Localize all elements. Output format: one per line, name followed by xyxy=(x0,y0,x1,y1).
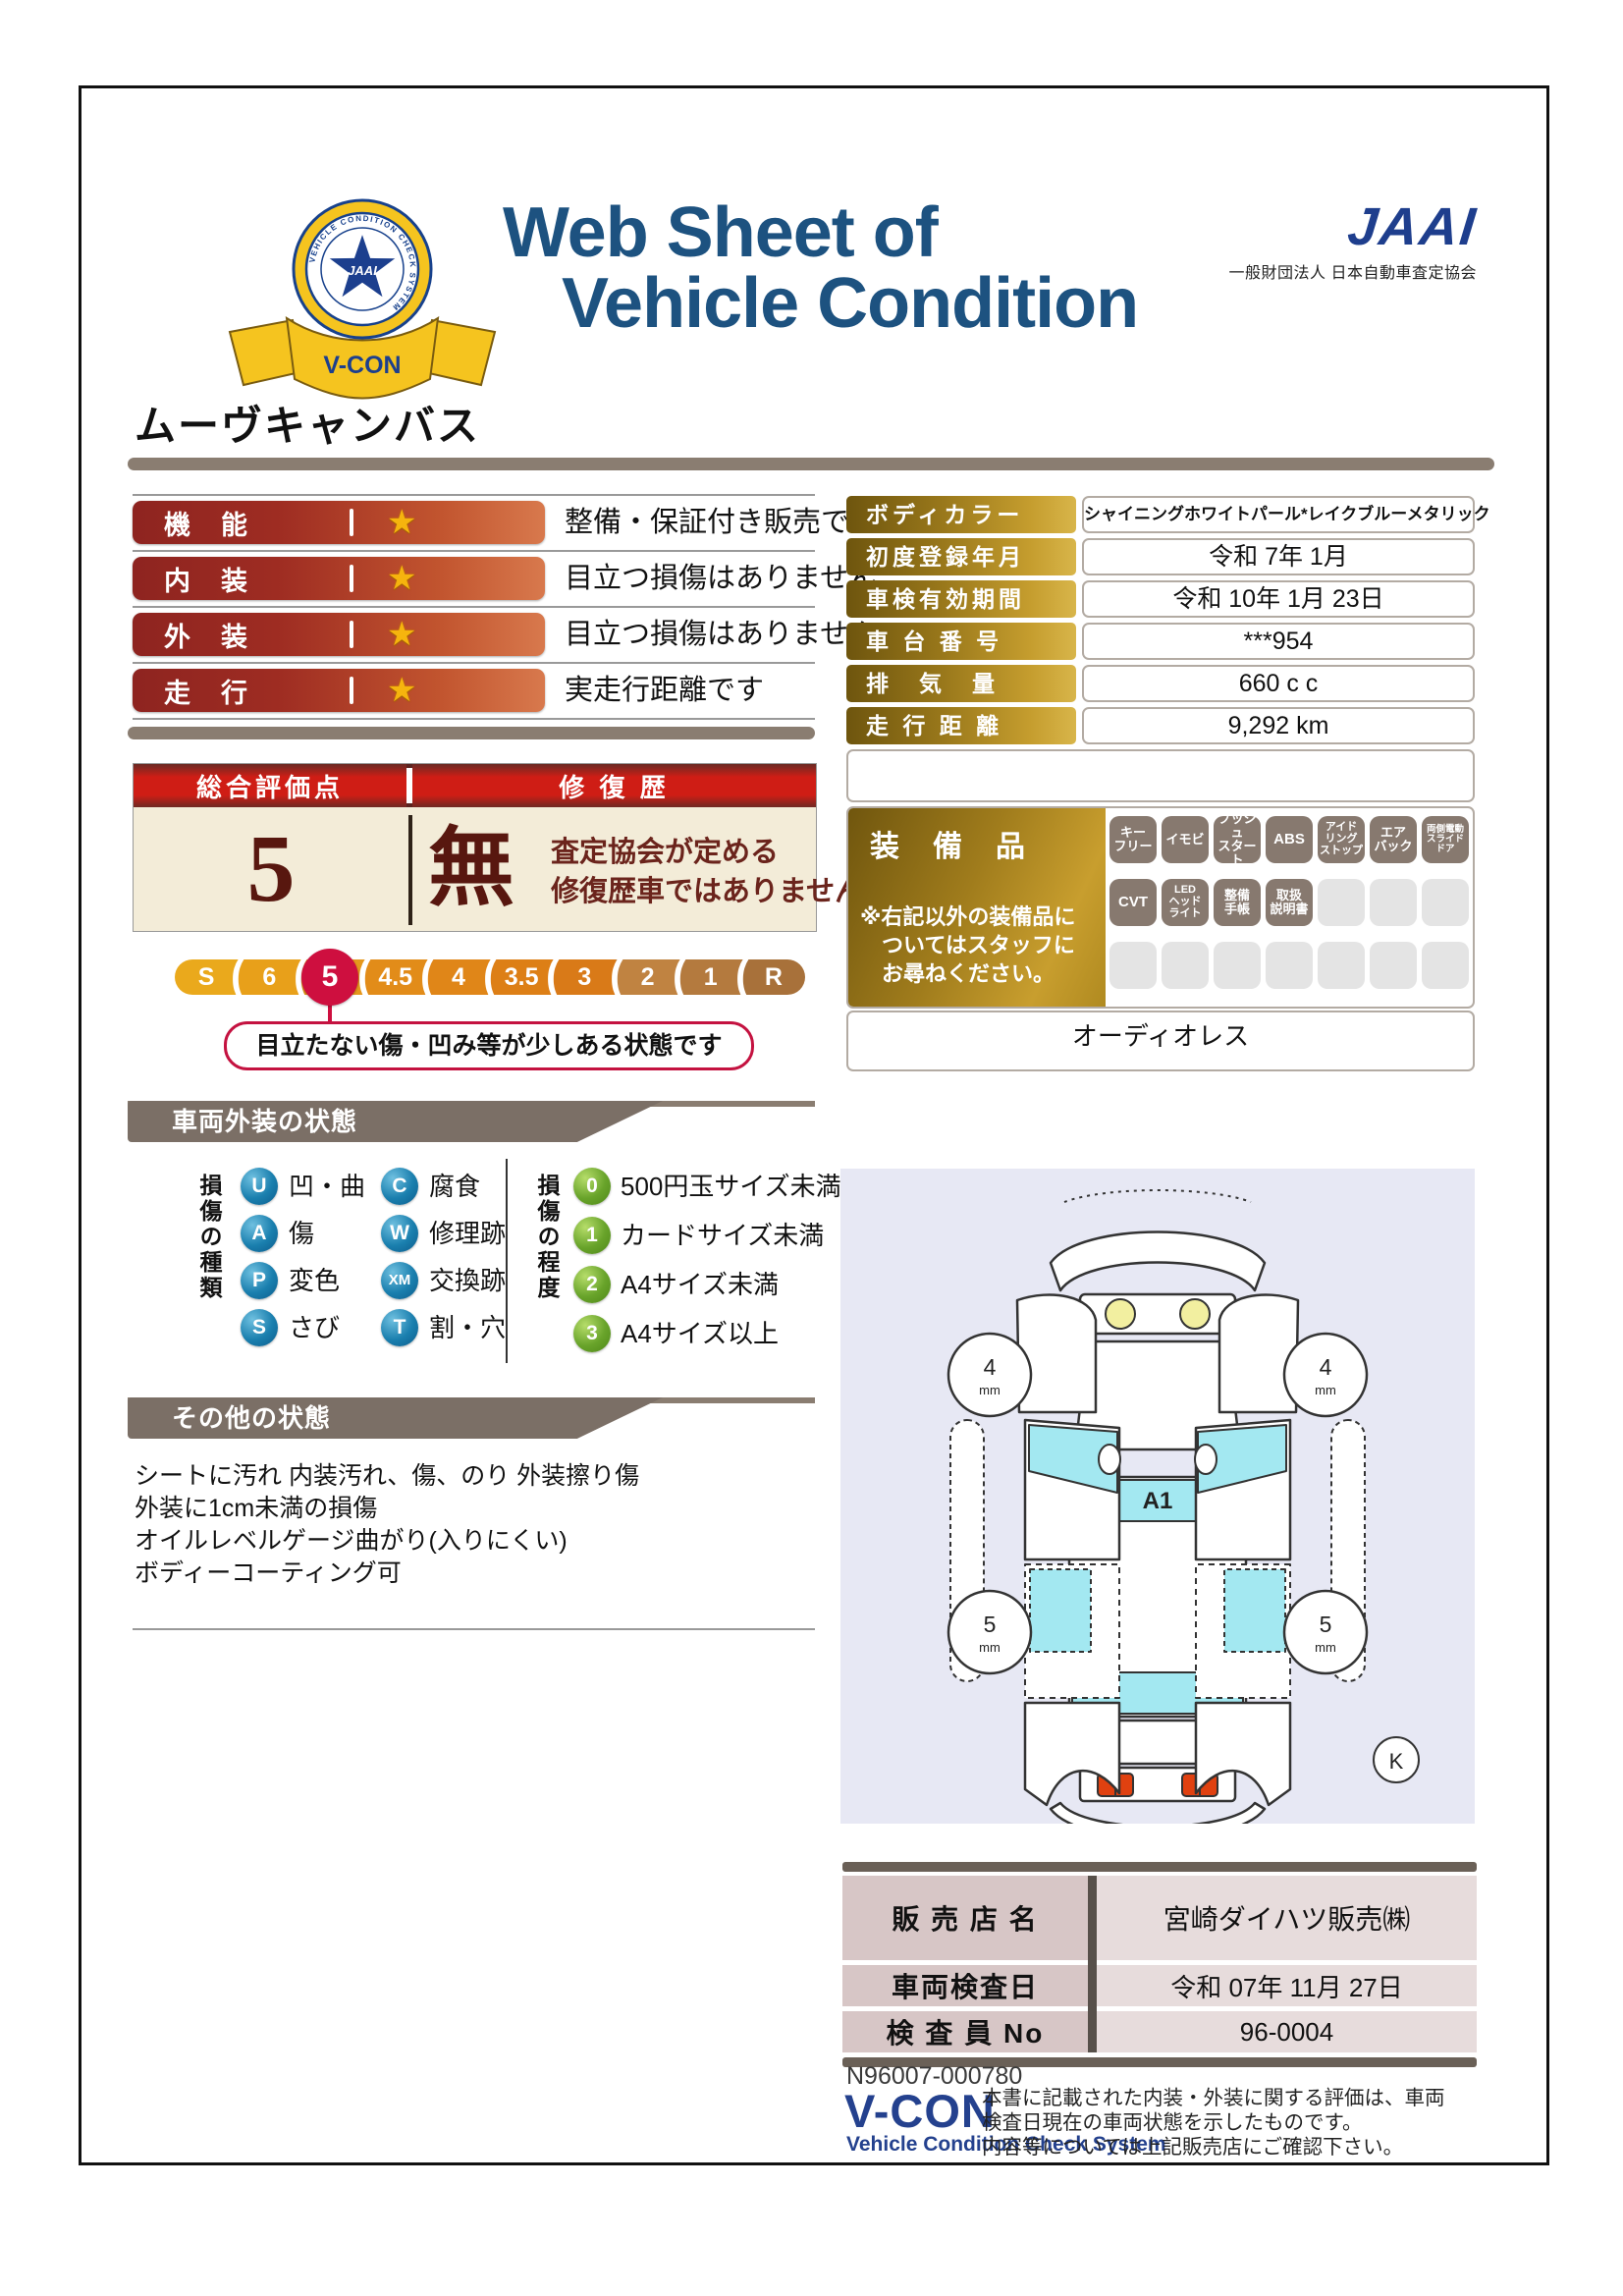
damage-type-text: 凹・曲 xyxy=(289,1168,365,1205)
damage-degree-icon-0: 0 xyxy=(573,1168,611,1205)
equipment-badge-manual: 取扱 説明書 xyxy=(1266,879,1313,926)
front-tread-left: 4 xyxy=(984,1354,997,1380)
star-icon: ★ xyxy=(387,615,416,654)
damage-type-icon-W: W xyxy=(381,1215,418,1252)
rating-label: 内 装 xyxy=(133,560,336,598)
rating-description: 目立つ損傷はありません xyxy=(565,557,877,600)
equipment-badge-ledheadlight: LED ヘッド ライト xyxy=(1162,879,1209,926)
damage-degree-icon-3: 3 xyxy=(573,1315,611,1352)
pill-divider xyxy=(350,677,353,704)
rating-label: 機 能 xyxy=(133,504,336,542)
equipment-badge-cvt: CVT xyxy=(1109,879,1157,926)
dealer-table-top-bar xyxy=(842,1862,1477,1872)
equipment-title: 装 備 品 xyxy=(870,822,1027,865)
jaai-logo: JAAI xyxy=(1195,196,1481,257)
equipment-badge-servicebook: 整備 手帳 xyxy=(1214,879,1261,926)
page-title-line2: Vehicle Condition xyxy=(562,263,1138,344)
jaai-logo-block: JAAI 一般財団法人 日本自動車査定協会 xyxy=(1198,196,1477,283)
unit-label: mm xyxy=(1315,1640,1336,1655)
detail-label: 走 行 距 離 xyxy=(846,707,1076,744)
overall-header-right: 修 復 歴 xyxy=(412,764,816,807)
damage-type-text: 変色 xyxy=(289,1262,340,1299)
other-section-underline xyxy=(133,1628,815,1630)
pill-divider xyxy=(350,509,353,536)
disclaimer-line: 内容等については上記販売店にご確認下さい。 xyxy=(982,2135,1403,2159)
damage-type-text: 交換跡 xyxy=(429,1262,506,1299)
overall-score-panel: 総合評価点 修 復 歴 5 無 査定協会が定める 修復歴車ではありません xyxy=(133,763,817,932)
scale-separator: ( xyxy=(543,952,563,1001)
star-icon: ★ xyxy=(387,559,416,598)
roof-section-label: A1 xyxy=(1143,1488,1173,1514)
equipment-badge-empty xyxy=(1318,879,1365,926)
inspector-no-label: 検 査 員 No xyxy=(842,2011,1088,2052)
repair-note-line2: 修復歴車ではありません xyxy=(551,868,863,909)
rating-separator xyxy=(133,718,815,720)
marker-letter: K xyxy=(1389,1749,1404,1774)
damage-degree-text: カードサイズ未満 xyxy=(621,1217,824,1254)
vcon-wordmark: V-CON xyxy=(844,2084,996,2138)
badge-ribbon-text: V-CON xyxy=(323,352,401,379)
equipment-badge-abs: ABS xyxy=(1266,816,1313,863)
headlight-left xyxy=(1106,1299,1135,1329)
headlight-right xyxy=(1180,1299,1210,1329)
repair-history-status: 無 xyxy=(428,819,514,921)
sheet-canvas: VEHICLE CONDITION CHECK SYSTEM JAAI V-CO… xyxy=(0,0,1623,2296)
dealer-name-label: 販 売 店 名 xyxy=(842,1876,1088,1960)
scale-separator: ( xyxy=(732,952,752,1001)
score-callout: 目立たない傷・凹み等が少しある状態です xyxy=(224,1021,754,1070)
damage-type-icon-P: P xyxy=(241,1262,278,1299)
equipment-badge-airbag: エア バック xyxy=(1370,816,1417,863)
rating-label: 外 装 xyxy=(133,616,336,654)
equipment-note-line: ついてはスタッフに xyxy=(860,931,1075,959)
overall-header: 総合評価点 修 復 歴 xyxy=(134,764,816,807)
damage-type-text: 傷 xyxy=(289,1215,314,1252)
damage-type-icon-A: A xyxy=(241,1215,278,1252)
rear-tread-left: 5 xyxy=(984,1612,997,1637)
rating-separator xyxy=(133,550,815,552)
section-title-exterior: 車両外装の状態 xyxy=(128,1101,663,1142)
detail-value-mileage: 9,292 km xyxy=(1082,707,1475,744)
jaai-subtitle: 一般財団法人 日本自動車査定協会 xyxy=(1198,259,1477,283)
equipment-badge-empty xyxy=(1266,942,1313,989)
damage-type-icon-S: S xyxy=(241,1309,278,1346)
star-icon: ★ xyxy=(387,503,416,542)
damage-type-text: 割・穴 xyxy=(429,1309,506,1346)
rear-tread-right: 5 xyxy=(1320,1612,1332,1637)
rating-row-soukou: 走 行 ★ xyxy=(133,669,545,712)
rating-description: 整備・保証付き販売です xyxy=(565,501,878,544)
damage-type-icon-T: T xyxy=(381,1309,418,1346)
rating-description: 目立つ損傷はありません xyxy=(565,613,877,656)
page-title-line1: Web Sheet of xyxy=(503,192,938,273)
front-panel xyxy=(1080,1294,1235,1334)
overall-header-left: 総合評価点 xyxy=(134,764,406,807)
rating-separator xyxy=(133,494,815,496)
equipment-badge-empty xyxy=(1422,879,1469,926)
equipment-badge-empty xyxy=(1422,942,1469,989)
scale-separator: ( xyxy=(670,952,689,1001)
disclaimer-line: 本書に記載された内装・外装に関する評価は、車両 xyxy=(982,2086,1445,2110)
badge-star-text: JAAI xyxy=(348,263,377,278)
damage-type-text: 修理跡 xyxy=(429,1215,506,1252)
damage-type-text: さび xyxy=(289,1309,340,1346)
rating-description: 実走行距離です xyxy=(565,669,764,712)
scale-separator: ( xyxy=(228,952,247,1001)
unit-label: mm xyxy=(979,1383,1001,1397)
damage-degree-text: A4サイズ未満 xyxy=(621,1266,779,1303)
other-condition-line: オイルレベルゲージ曲がり(入りにくい) xyxy=(135,1525,568,1558)
unit-label: mm xyxy=(1315,1383,1336,1397)
disclaimer-line: 検査日現在の車両状態を示したものです。 xyxy=(982,2110,1362,2135)
detail-label: 車検有効期間 xyxy=(846,580,1076,618)
body-divider xyxy=(408,815,412,925)
equipment-note-line: ※右記以外の装備品に xyxy=(860,902,1075,931)
damage-degree-text: 500円玉サイズ未満 xyxy=(621,1168,841,1205)
rating-separator xyxy=(133,606,815,608)
damage-type-icon-C: C xyxy=(381,1168,418,1205)
detail-value-displacement: 660 c c xyxy=(1082,665,1475,702)
damage-type-label: 損傷の種類 xyxy=(192,1174,226,1340)
equipment-badge-powerslidedoor: 両側電動 スライド ドア xyxy=(1422,816,1469,863)
detail-value-chassis-number: ***954 xyxy=(1082,623,1475,660)
scale-separator: ( xyxy=(607,952,626,1001)
equipment-badge-empty xyxy=(1318,942,1365,989)
details-empty-box xyxy=(846,749,1475,802)
equipment-badge-empty xyxy=(1214,942,1261,989)
other-condition-line: ボディーコーティング可 xyxy=(135,1558,402,1590)
equipment-badge-keyfree: キー フリー xyxy=(1109,816,1157,863)
detail-label: 初度登録年月 xyxy=(846,538,1076,575)
detail-value-body-color: シャイニングホワイトパール*レイクブルーメタリック xyxy=(1082,496,1475,533)
damage-degree-text: A4サイズ以上 xyxy=(621,1315,779,1352)
rating-row-gaisou: 外 装 ★ xyxy=(133,613,545,656)
detail-label: ボディカラー xyxy=(846,496,1076,533)
pill-divider xyxy=(350,621,353,648)
damage-degree-icon-1: 1 xyxy=(573,1217,611,1254)
active-score-marker: 5 xyxy=(301,949,358,1006)
equipment-badge-empty xyxy=(1109,942,1157,989)
door-mirror xyxy=(1099,1445,1120,1474)
other-condition-line: 外装に1cm未満の損傷 xyxy=(135,1493,377,1525)
scale-separator: ( xyxy=(417,952,437,1001)
equipment-gold-panel: 装 備 品 ※右記以外の装備品に ついてはスタッフに お尋ねください。 xyxy=(848,808,1106,1007)
equipment-badge-immobilizer: イモビ xyxy=(1162,816,1209,863)
damage-degree-icon-2: 2 xyxy=(573,1266,611,1303)
pill-divider xyxy=(350,565,353,592)
divider-bar-top xyxy=(128,458,1494,470)
detail-value-first-registration: 令和 7年 1月 xyxy=(1082,538,1475,575)
detail-label: 車 台 番 号 xyxy=(846,623,1076,660)
damage-type-text: 腐食 xyxy=(429,1168,480,1205)
dealer-table-divider xyxy=(1088,1876,1097,2052)
equipment-badge-empty xyxy=(1162,942,1209,989)
repair-note-line1: 査定協会が定める xyxy=(551,829,779,870)
damage-degree-label: 損傷の程度 xyxy=(530,1174,564,1340)
equipment-badge-grid: キー フリー イモビ プッシュ スタート ABS アイド リング ストップ エア… xyxy=(1109,816,1475,989)
equipment-badge-idlingstop: アイド リング ストップ xyxy=(1318,816,1365,863)
legend-divider xyxy=(506,1159,508,1363)
damage-type-icon-U: U xyxy=(241,1168,278,1205)
divider-bar-left xyxy=(128,727,815,739)
unit-label: mm xyxy=(979,1640,1001,1655)
inspection-date-value: 令和 07年 11月 27日 xyxy=(1097,1965,1477,2006)
equipment-badge-empty xyxy=(1370,942,1417,989)
equipment-badge-empty xyxy=(1370,879,1417,926)
front-tread-right: 4 xyxy=(1320,1354,1332,1380)
damage-type-icon-XM: XM xyxy=(381,1262,418,1299)
inspector-no-value: 96-0004 xyxy=(1097,2011,1477,2052)
header-divider xyxy=(406,768,412,803)
scale-separator: ( xyxy=(480,952,500,1001)
rating-row-naisou: 内 装 ★ xyxy=(133,557,545,600)
star-icon: ★ xyxy=(387,671,416,710)
rear-door-window xyxy=(1030,1569,1091,1652)
car-exterior-diagram: A1 4 mm 4 mm 5 mm 5 mm K xyxy=(840,1169,1475,1824)
section-title-other: その他の状態 xyxy=(128,1397,663,1439)
equipment-note-line: お尋ねください。 xyxy=(860,959,1075,988)
dealer-name-value: 宮崎ダイハツ販売㈱ xyxy=(1097,1876,1477,1960)
rating-label: 走 行 xyxy=(133,672,336,710)
overall-score-value: 5 xyxy=(134,815,408,923)
detail-value-inspection-validity: 令和 10年 1月 23日 xyxy=(1082,580,1475,618)
front-fender xyxy=(1017,1294,1096,1412)
equipment-badge-pushstart: プッシュ スタート xyxy=(1214,816,1261,863)
rating-separator xyxy=(133,662,815,664)
detail-label: 排 気 量 xyxy=(846,665,1076,702)
inspection-date-label: 車両検査日 xyxy=(842,1965,1088,2006)
rating-row-kinou: 機 能 ★ xyxy=(133,501,545,544)
other-condition-line: シートに汚れ 内装汚れ、傷、のり 外装擦り傷 xyxy=(135,1460,639,1493)
vehicle-name: ムーヴキャンバス xyxy=(135,393,480,453)
vcon-badge-logo: VEHICLE CONDITION CHECK SYSTEM JAAI V-CO… xyxy=(214,187,511,405)
audio-note-box: オーディオレス xyxy=(846,1011,1475,1071)
equipment-note: ※右記以外の装備品に ついてはスタッフに お尋ねください。 xyxy=(860,902,1075,988)
